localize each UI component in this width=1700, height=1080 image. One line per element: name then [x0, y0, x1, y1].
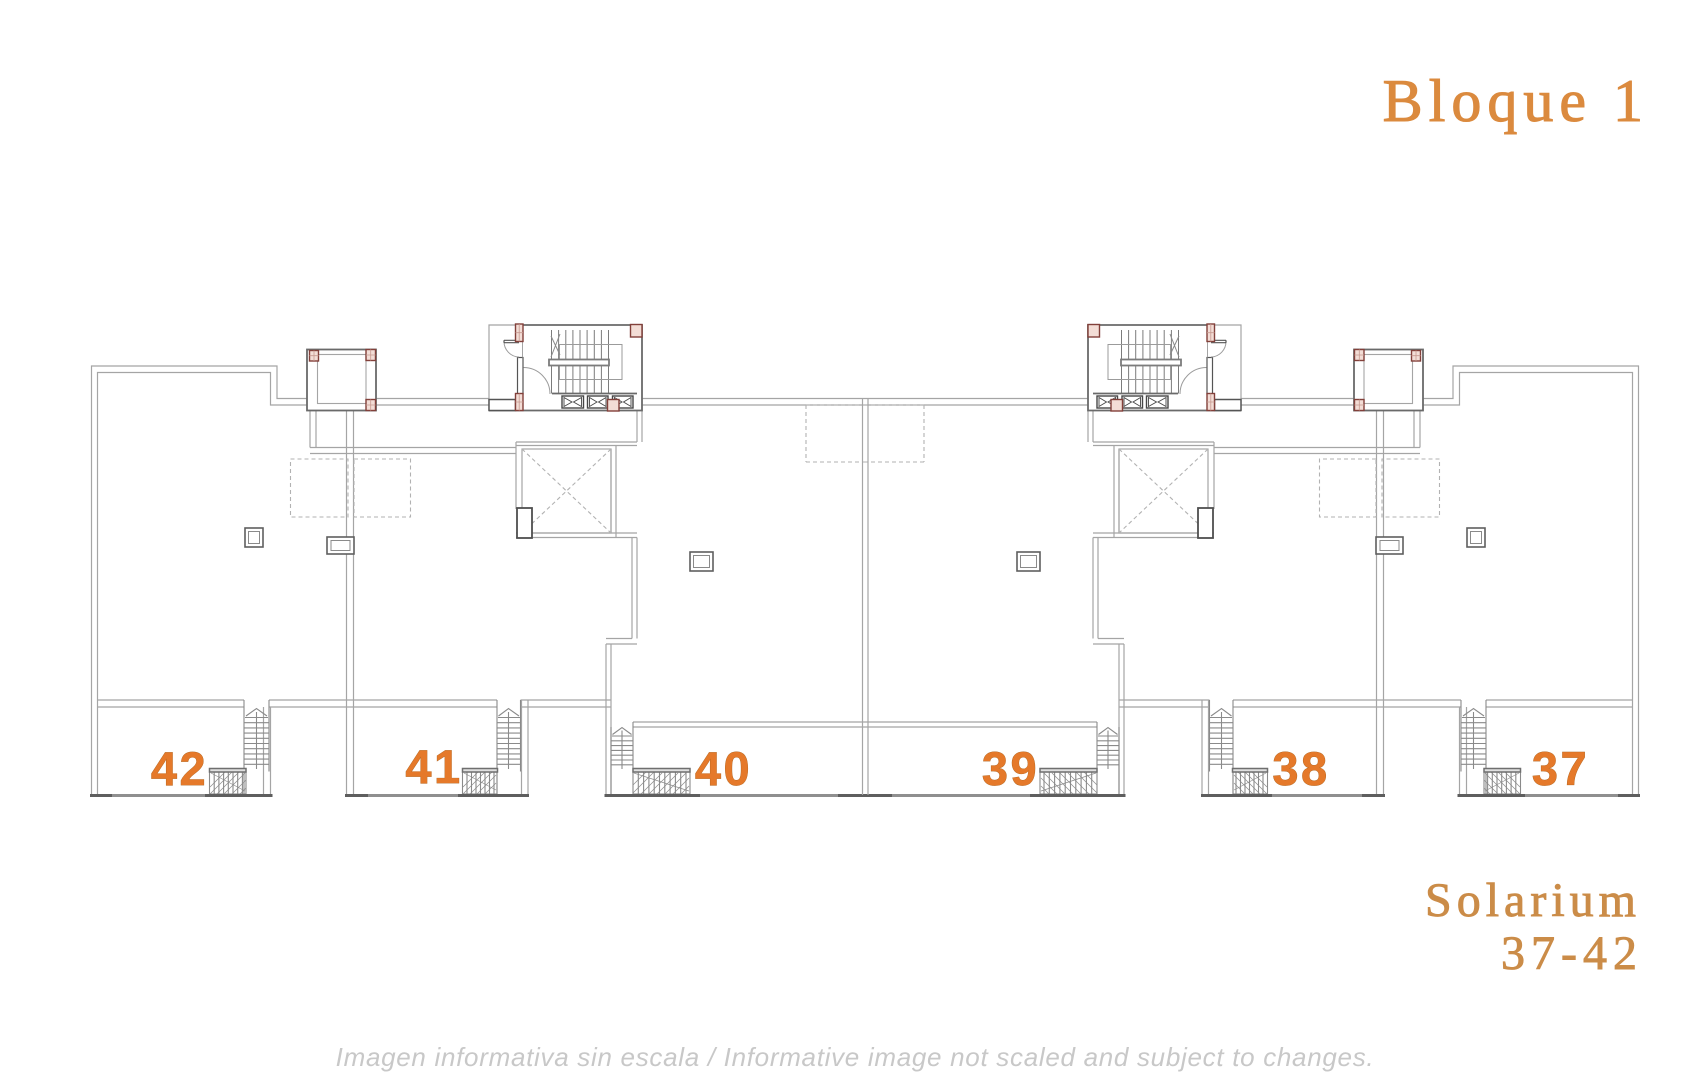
svg-text:41: 41 — [405, 740, 462, 793]
svg-text:Imagen informativa sin escala: Imagen informativa sin escala / Informat… — [336, 1042, 1375, 1072]
svg-text:42: 42 — [151, 742, 208, 795]
svg-text:37: 37 — [1532, 742, 1589, 795]
svg-text:Solarium: Solarium — [1425, 874, 1641, 927]
svg-text:Bloque 1: Bloque 1 — [1383, 68, 1649, 134]
svg-text:39: 39 — [982, 742, 1039, 795]
svg-text:37-42: 37-42 — [1501, 927, 1643, 980]
svg-text:38: 38 — [1272, 742, 1329, 795]
svg-text:40: 40 — [695, 742, 752, 795]
